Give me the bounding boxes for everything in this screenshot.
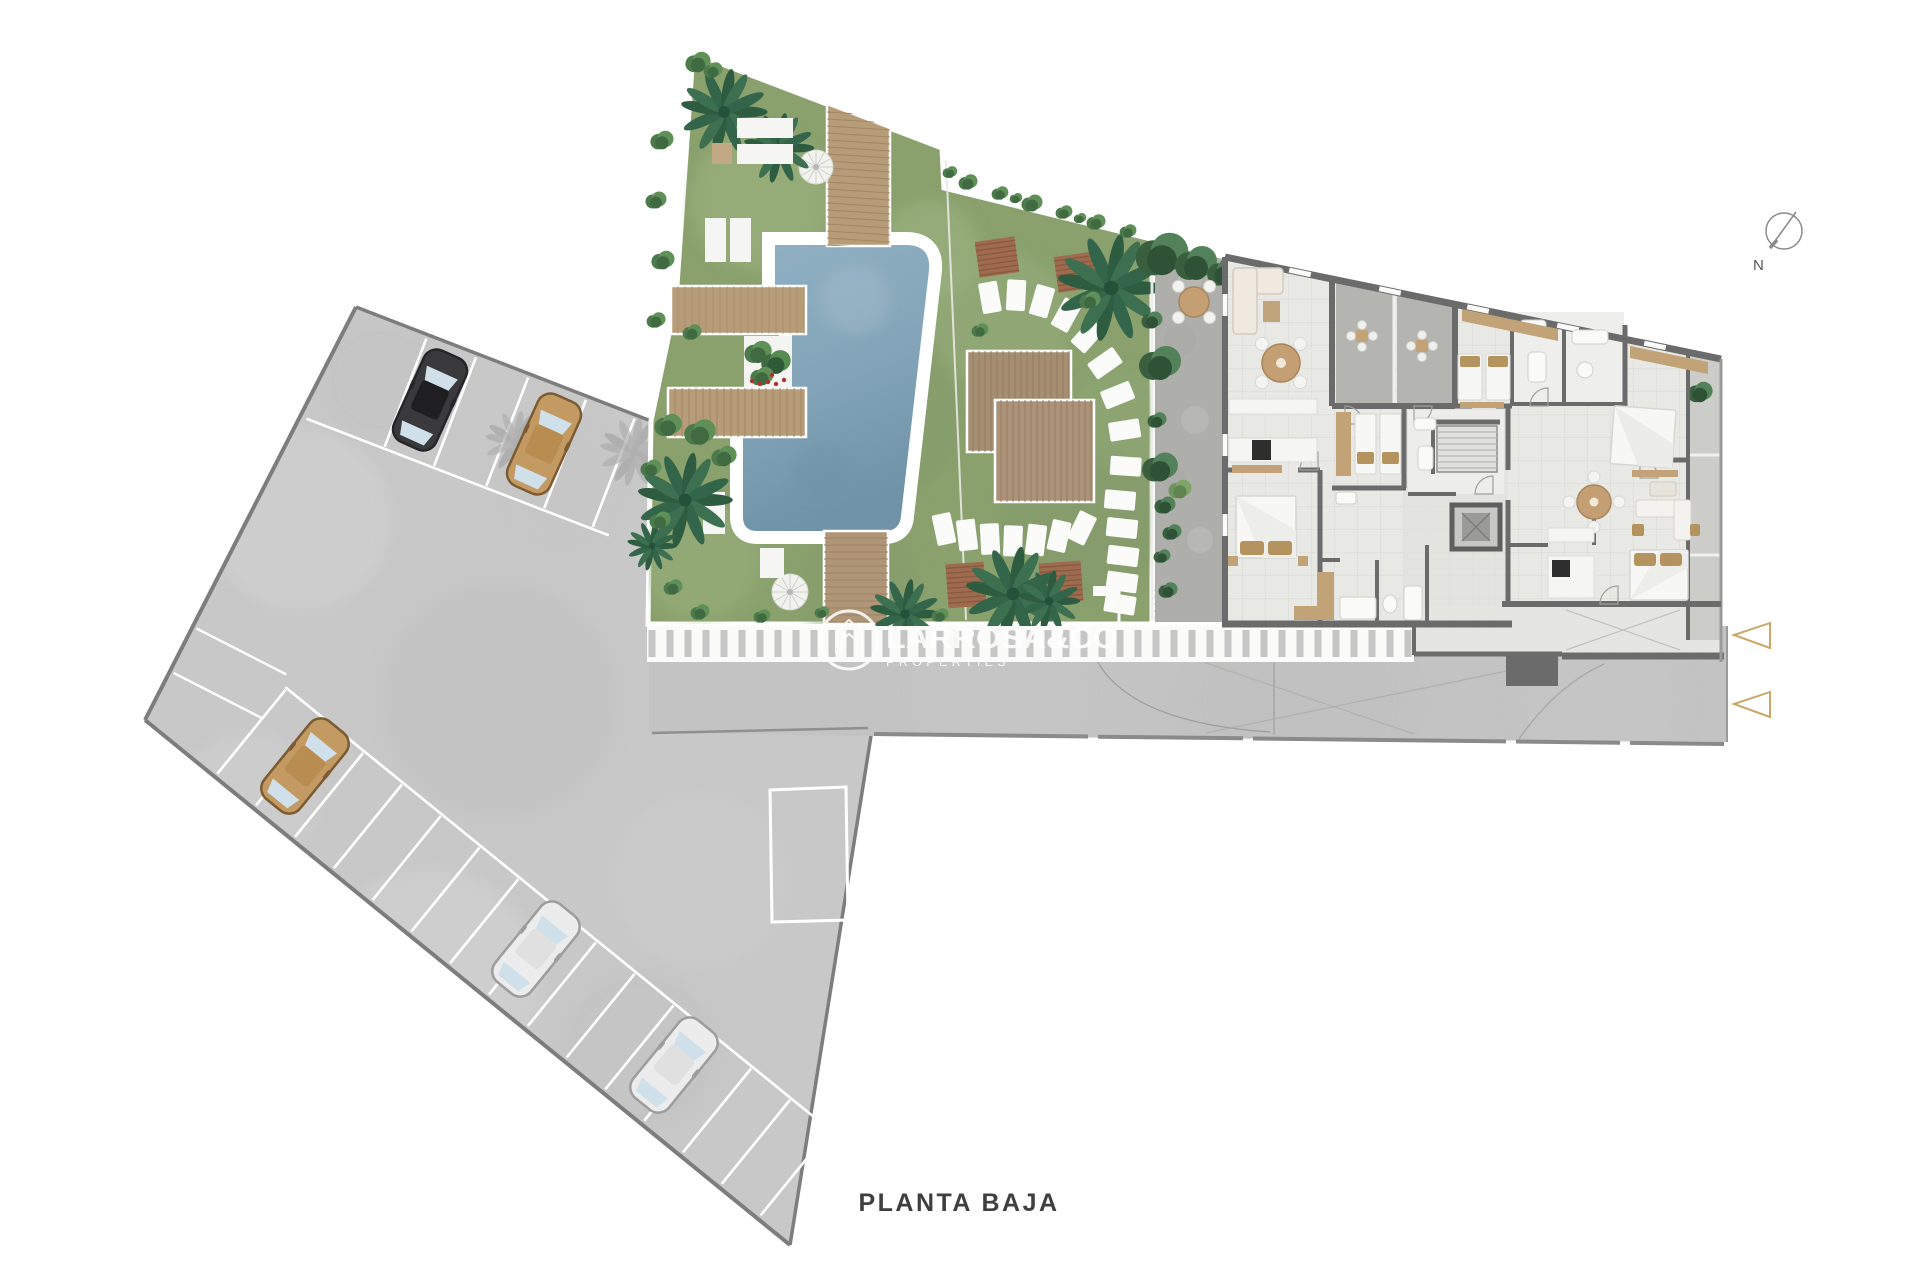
svg-text:LARROSA&CO: LARROSA&CO xyxy=(886,622,1118,655)
svg-text:N: N xyxy=(1753,257,1764,274)
svg-text:PLANTA BAJA: PLANTA BAJA xyxy=(858,1189,1059,1217)
svg-text:PROPERTIES: PROPERTIES xyxy=(886,655,1010,669)
